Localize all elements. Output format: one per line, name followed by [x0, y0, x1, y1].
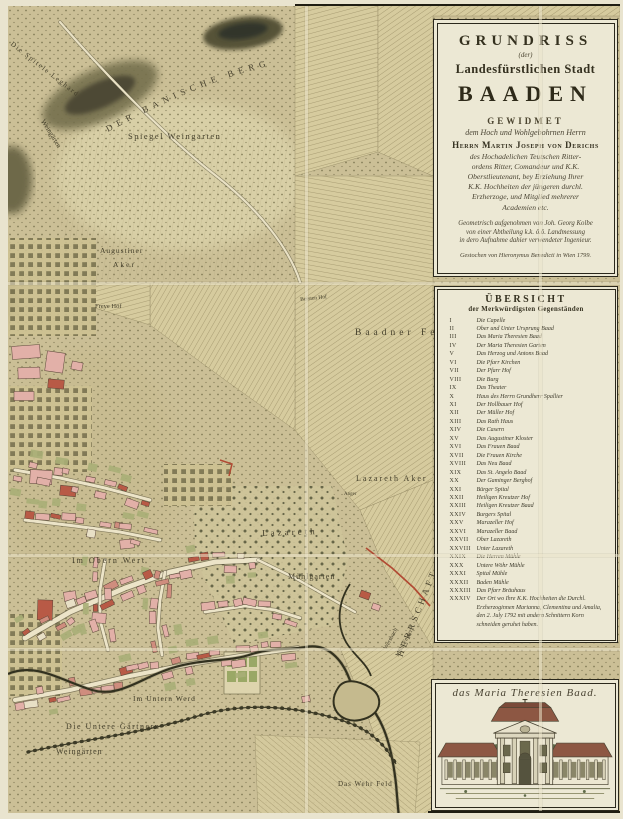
legend-item: XIXDas St. Angelo Baad — [450, 469, 608, 477]
legend-item-number: XXI — [450, 486, 477, 494]
legend-item-label: Ober Lazareth — [477, 536, 608, 544]
map-label-spiegel-weingarten: Spiegel Weingarten — [128, 131, 221, 141]
legend-item: XHaus des Herrn Grundherr Spallier — [450, 393, 608, 401]
map-label-im-obern-wert: Im Obern Wert — [72, 556, 146, 565]
legend-item-label: Das Theater — [477, 384, 608, 392]
legend-item-number: XXXII — [450, 579, 477, 587]
map-label-muehlgarten: Mühlgarten — [288, 572, 335, 581]
legend-item-label: Der Müller Hof — [477, 409, 608, 417]
map-city-name: BAADEN — [438, 81, 614, 107]
dedication-text: des Hochadelichen Teutschen Ritter- orde… — [438, 152, 614, 213]
legend-item-number: XXVII — [450, 536, 477, 544]
dedicatee-name: Herrn Martin Joseph von Derichs — [438, 140, 614, 150]
legend-item-number: XX — [450, 477, 477, 485]
sheet-margin-bottom — [0, 813, 623, 819]
legend-item: XVIIIDas Neu Baad — [450, 460, 608, 468]
sheet-margin-left — [0, 0, 8, 819]
legend-item: XIIIDas Rath Haus — [450, 418, 608, 426]
legend-title: ÜBERSICHT — [438, 294, 615, 305]
legend-item-number: XXII — [450, 494, 477, 502]
legend-item: XXIXDie Herren Mühle — [450, 553, 608, 561]
legend-item-label: Das Augustiner Kloster — [477, 435, 608, 443]
surveyor-note-line: Geometrisch aufgenohmen von Joh. Georg K… — [438, 220, 614, 229]
map-label-weingaerten-unten: Weingärten — [56, 747, 103, 756]
legend-item: VIIIDie Burg — [450, 376, 608, 384]
legend-item: XVIDas Frauen Baad — [450, 443, 608, 451]
legend-item: IDie Capelle — [450, 317, 608, 325]
legend-item-number: VI — [450, 359, 477, 367]
legend-item: XXVIIIUnter Lazareth — [450, 545, 608, 553]
map-label-lazareth: Lazareth — [262, 526, 318, 538]
legend-item-label: Baden Mühle — [477, 579, 608, 587]
legend-item-label: Heiligen Kreutzer Baad — [477, 502, 608, 510]
legend-list: IDie CapelleIIOber und Unter Ursprung Ba… — [438, 317, 615, 630]
legend-item-number: IV — [450, 342, 477, 350]
title-cartouche: GRUNDRISS (der) Landesfürstlichen Stadt … — [433, 19, 618, 277]
legend-item-label: Die Pfarr Kirchen — [477, 359, 608, 367]
legend-item-label: Das Frauen Baad — [477, 443, 608, 451]
legend-item-number: XXVIII — [450, 545, 477, 553]
engraver-note: Gestochen von Hieronymus Benedicti in Wi… — [438, 252, 614, 259]
legend-item-number: V — [450, 350, 477, 358]
maria-theresien-baad-illustration — [436, 699, 614, 803]
map-label-im-untern-werd: Im Untern Werd — [133, 694, 196, 703]
legend-item: XXXIIIDas Pfarr Bräuhaus — [450, 587, 608, 595]
legend-item: XXIIHeiligen Kreutzer Hof — [450, 494, 608, 502]
legend-item: XIVDie Casern — [450, 426, 608, 434]
legend-subtitle: der Merkwürdigsten Gegenständen — [438, 306, 615, 313]
legend-item: XXXIVDer Ort wo Ihre K.K. Hochheiten die… — [450, 595, 608, 629]
map-subtitle: Landesfürstlichen Stadt — [438, 62, 614, 77]
legend-item-label: Der Ort wo Ihre K.K. Hochheiten die Durc… — [477, 595, 608, 629]
sheet-border-bottom-right — [428, 811, 620, 813]
vignette-panel: das Maria Theresien Baad. — [431, 679, 619, 811]
legend-item-label: Die Frauen Kirche — [477, 452, 608, 460]
legend-item-number: XXX — [450, 562, 477, 570]
legend-item-label: Bürger Spital — [477, 486, 608, 494]
legend-item-number: XVIII — [450, 460, 477, 468]
legend-item-label: Haus des Herrn Grundherr Spallier — [477, 393, 608, 401]
legend-item-label: Spital Mühle — [477, 570, 608, 578]
legend-item-number: I — [450, 317, 477, 325]
legend-item: XXIVBurgers Spital — [450, 511, 608, 519]
legend-item-label: Marazeller Hof — [477, 519, 608, 527]
legend-item: XXVMarazeller Hof — [450, 519, 608, 527]
legend-item-number: X — [450, 393, 477, 401]
map-label-anger: Anger — [344, 492, 357, 497]
legend-item: XVIIDie Frauen Kirche — [450, 452, 608, 460]
vignette-caption: das Maria Theresien Baad. — [436, 687, 615, 699]
legend-item-label: Die Casern — [477, 426, 608, 434]
dedication-text-line: ordens Ritter, Comandeur und K.K. — [438, 162, 614, 172]
legend-item: XXXISpital Mühle — [450, 570, 608, 578]
legend-item-label: Die Herren Mühle — [477, 553, 608, 561]
map-title-der: (der) — [438, 51, 614, 59]
legend-item: XXDer Gaminger Berghof — [450, 477, 608, 485]
legend-item-number: XXXIII — [450, 587, 477, 595]
legend-item-label: Die Capelle — [477, 317, 608, 325]
legend-item-label: Die Burg — [477, 376, 608, 384]
map-title: GRUNDRISS — [438, 33, 614, 50]
dedication-text-line: K.K. Hochheiten der jüngeren durchl. — [438, 182, 614, 192]
legend-item: IVDer Maria Theresien Garten — [450, 342, 608, 350]
legend-item-label: Das Herzog und Antons Baad — [477, 350, 608, 358]
map-label-augustiner: Augustiner — [100, 246, 143, 255]
legend-item: XXVIMarazeller Baad — [450, 528, 608, 536]
legend-item-label: Das Maria Theresien Baad — [477, 333, 608, 341]
legend-item-label: Das Rath Haus — [477, 418, 608, 426]
legend-item-number: VII — [450, 367, 477, 375]
legend-item-label: Das Pfarr Bräuhaus — [477, 587, 608, 595]
dedication-heading: GEWIDMET — [438, 116, 614, 126]
legend-item-label: Der Pfarr Hof — [477, 367, 608, 375]
legend-item: XXIBürger Spital — [450, 486, 608, 494]
legend-item-number: XV — [450, 435, 477, 443]
legend-item-number: XIV — [450, 426, 477, 434]
legend-item-number: XXIV — [450, 511, 477, 519]
legend-item-label: Untere Wöhr Mühle — [477, 562, 608, 570]
legend-item-label: Marazeller Baad — [477, 528, 608, 536]
map-label-untere-gaertnern: Die Untere Gärtnern — [66, 722, 160, 731]
legend-item: XXVIIOber Lazareth — [450, 536, 608, 544]
map-label-das-wehr-feld: Das Wehr Feld — [338, 780, 393, 788]
legend-item-number: XIII — [450, 418, 477, 426]
legend-item-label: Der Hollbauer Hof — [477, 401, 608, 409]
legend-item-label: Das St. Angelo Baad — [477, 469, 608, 477]
legend-item-label: Der Maria Theresien Garten — [477, 342, 608, 350]
legend-item: XVDas Augustiner Kloster — [450, 435, 608, 443]
dedication-line: dem Hoch und Wohlgebohrnen Herrn — [438, 128, 614, 137]
sheet-border-top — [295, 4, 620, 6]
legend-item-label: Der Gaminger Berghof — [477, 477, 608, 485]
legend-item-number: XXIX — [450, 553, 477, 561]
legend-panel: ÜBERSICHT der Merkwürdigsten Gegenstände… — [434, 286, 618, 643]
legend-item-number: XVI — [450, 443, 477, 451]
legend-item-number: XII — [450, 409, 477, 417]
legend-item-number: XXIII — [450, 502, 477, 510]
dedication-text-line: des Hochadelichen Teutschen Ritter- — [438, 152, 614, 162]
legend-item: IXDas Theater — [450, 384, 608, 392]
legend-item: VIDie Pfarr Kirchen — [450, 359, 608, 367]
legend-item-label: Das Neu Baad — [477, 460, 608, 468]
legend-item-label: Burgers Spital — [477, 511, 608, 519]
legend-item-number: III — [450, 333, 477, 341]
legend-item: XXXIIBaden Mühle — [450, 579, 608, 587]
legend-item-number: VIII — [450, 376, 477, 384]
legend-item-number: XIX — [450, 469, 477, 477]
map-sheet: DER BANISCHE BERG Die Spitele Leghard Sp… — [0, 0, 623, 819]
legend-item: XXIIIHeiligen Kreutzer Baad — [450, 502, 608, 510]
legend-item: VIIDer Pfarr Hof — [450, 367, 608, 375]
dedication-text-line: Academien etc. — [438, 203, 614, 213]
surveyor-note-line: in dero Aufnahme dahier verwendeter Inge… — [438, 237, 614, 246]
legend-item-number: XXXI — [450, 570, 477, 578]
legend-item-number: XXXIV — [450, 595, 477, 629]
dedication-text-line: Erzherzoge, und Mitglied mehrerer — [438, 192, 614, 202]
surveyor-note-line: von einer Abtheilung k.k. ö.ö. Landmessu… — [438, 229, 614, 238]
legend-item-number: XXV — [450, 519, 477, 527]
legend-item: XIIDer Müller Hof — [450, 409, 608, 417]
legend-item-number: XVII — [450, 452, 477, 460]
legend-item-number: IX — [450, 384, 477, 392]
surveyor-note: Geometrisch aufgenohmen von Joh. Georg K… — [438, 220, 614, 246]
legend-item-label: Heiligen Kreutzer Hof — [477, 494, 608, 502]
dedication-text-line: Oberstlieutenant, bey Erziehung Ihrer — [438, 172, 614, 182]
map-label-aker: Aker — [113, 260, 136, 269]
legend-item-label: Ober und Unter Ursprung Baad — [477, 325, 608, 333]
legend-item-label: Unter Lazareth — [477, 545, 608, 553]
legend-item: XXXUntere Wöhr Mühle — [450, 562, 608, 570]
legend-item: VDas Herzog und Antons Baad — [450, 350, 608, 358]
map-label-lazareth-aker: Lazareth Aker — [356, 474, 428, 483]
map-label-freye-hoef: Freye Höf — [95, 303, 122, 310]
legend-item: XIDer Hollbauer Hof — [450, 401, 608, 409]
legend-item-number: XXVI — [450, 528, 477, 536]
legend-item: IIIDas Maria Theresien Baad — [450, 333, 608, 341]
legend-item-number: II — [450, 325, 477, 333]
legend-item: IIOber und Unter Ursprung Baad — [450, 325, 608, 333]
legend-item-number: XI — [450, 401, 477, 409]
